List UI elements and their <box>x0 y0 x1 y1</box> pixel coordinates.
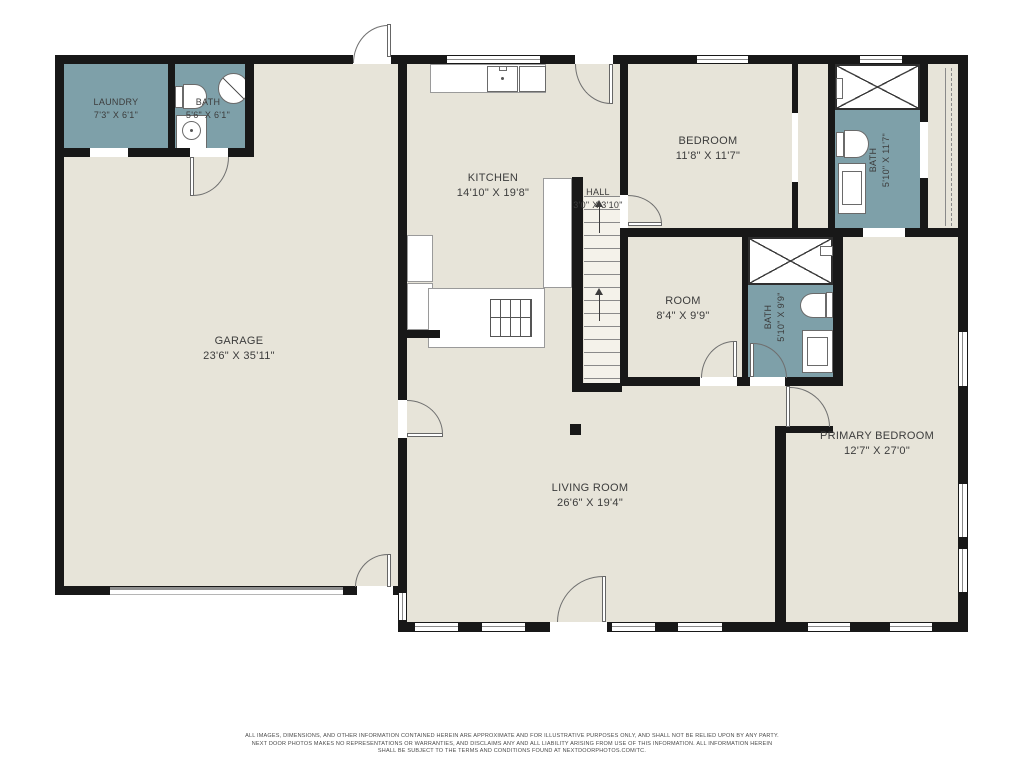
floor-plan-page: GARAGE 23'6" X 35'11" LAUNDRY 7'3" X 6'1… <box>0 0 1024 768</box>
wall-opening <box>863 228 905 237</box>
closet-shelf-line <box>945 68 946 226</box>
room-label-bedroom: BEDROOM 11'8" X 11'7" <box>608 134 808 164</box>
disclaimer-line-3: SHALL BE SUBJECT TO THE TERMS AND CONDIT… <box>0 748 1024 756</box>
window <box>697 56 748 63</box>
door-opening <box>190 148 228 157</box>
window <box>678 623 722 631</box>
room-name: LIVING ROOM <box>490 481 690 496</box>
disclaimer-line-2: NEXT DOOR PHOTOS MAKES NO REPRESENTATION… <box>0 741 1024 749</box>
room-name: BATH <box>158 96 258 109</box>
room-name: GARAGE <box>139 334 339 349</box>
faucet-icon <box>499 66 507 71</box>
room-dims: 5'6" X 6'1" <box>158 109 258 122</box>
room-dims: 23'6" X 35'11" <box>139 349 339 364</box>
toilet-tank-icon <box>826 292 833 318</box>
sink-drain-dot <box>501 77 504 80</box>
room-dims: 11'8" X 11'7" <box>608 149 808 164</box>
window <box>482 623 525 631</box>
shower-icon <box>835 64 920 110</box>
room-dims: 5'10" X 11'7" <box>880 110 893 210</box>
door-swing <box>353 25 388 63</box>
door-opening <box>550 622 607 632</box>
window <box>890 623 932 631</box>
room-name: HALL <box>548 186 648 199</box>
window <box>399 593 406 620</box>
room-label-garage: GARAGE 23'6" X 35'11" <box>139 334 339 364</box>
room-name: LAUNDRY <box>66 96 166 109</box>
window <box>959 332 967 386</box>
room-dims: 7'3" X 6'1" <box>66 109 166 122</box>
wall <box>398 330 440 338</box>
room-name: BEDROOM <box>608 134 808 149</box>
closet-rod-dashed-line <box>951 68 952 226</box>
wall <box>398 55 407 632</box>
window <box>860 56 902 63</box>
room-name: BATH <box>762 267 775 367</box>
room-dims: 12'7" X 27'0" <box>777 444 977 459</box>
stove-icon <box>490 299 532 337</box>
window <box>447 56 540 63</box>
door-opening <box>357 586 393 595</box>
room-label-bath-laundry: BATH 5'6" X 6'1" <box>158 96 258 122</box>
window <box>959 549 967 592</box>
door-opening <box>750 377 785 386</box>
room-label-bath-middle: BATH 5'10" X 9'9" <box>725 267 825 367</box>
room-label-bath-upper: BATH 5'10" X 11'7" <box>830 110 930 210</box>
wall <box>572 383 622 392</box>
shower-valve-icon <box>820 246 833 256</box>
room-dims: 26'6" X 19'4" <box>490 496 690 511</box>
disclaimer-line-1: ALL IMAGES, DIMENSIONS, AND OTHER INFORM… <box>0 733 1024 741</box>
room-label-living-room: LIVING ROOM 26'6" X 19'4" <box>490 481 690 511</box>
door-opening <box>398 400 407 438</box>
window <box>612 623 655 631</box>
room-label-primary-bedroom: PRIMARY BEDROOM 12'7" X 27'0" <box>777 429 977 459</box>
room-name: KITCHEN <box>393 171 593 186</box>
kitchen-counter <box>407 235 433 282</box>
window <box>959 484 967 537</box>
door-opening <box>575 55 613 64</box>
kitchen-appliance-icon <box>519 66 546 92</box>
room-name: BATH <box>867 110 880 210</box>
sink-drain-dot <box>190 129 193 132</box>
room-dims: 3'0" X 3'10" <box>548 199 648 212</box>
disclaimer-text: ALL IMAGES, DIMENSIONS, AND OTHER INFORM… <box>0 733 1024 756</box>
room-label-hall: HALL 3'0" X 3'10" <box>548 186 648 212</box>
column-post <box>570 424 581 435</box>
window <box>808 623 850 631</box>
garage-door <box>110 587 343 595</box>
room-dims: 5'10" X 9'9" <box>775 267 788 367</box>
room-name: PRIMARY BEDROOM <box>777 429 977 444</box>
room-label-laundry: LAUNDRY 7'3" X 6'1" <box>66 96 166 122</box>
wall <box>55 55 64 595</box>
wall <box>833 237 843 386</box>
wall-opening <box>90 148 128 157</box>
window <box>415 623 458 631</box>
shower-valve-icon <box>836 78 843 99</box>
door-opening <box>700 377 737 386</box>
wall <box>620 228 968 237</box>
